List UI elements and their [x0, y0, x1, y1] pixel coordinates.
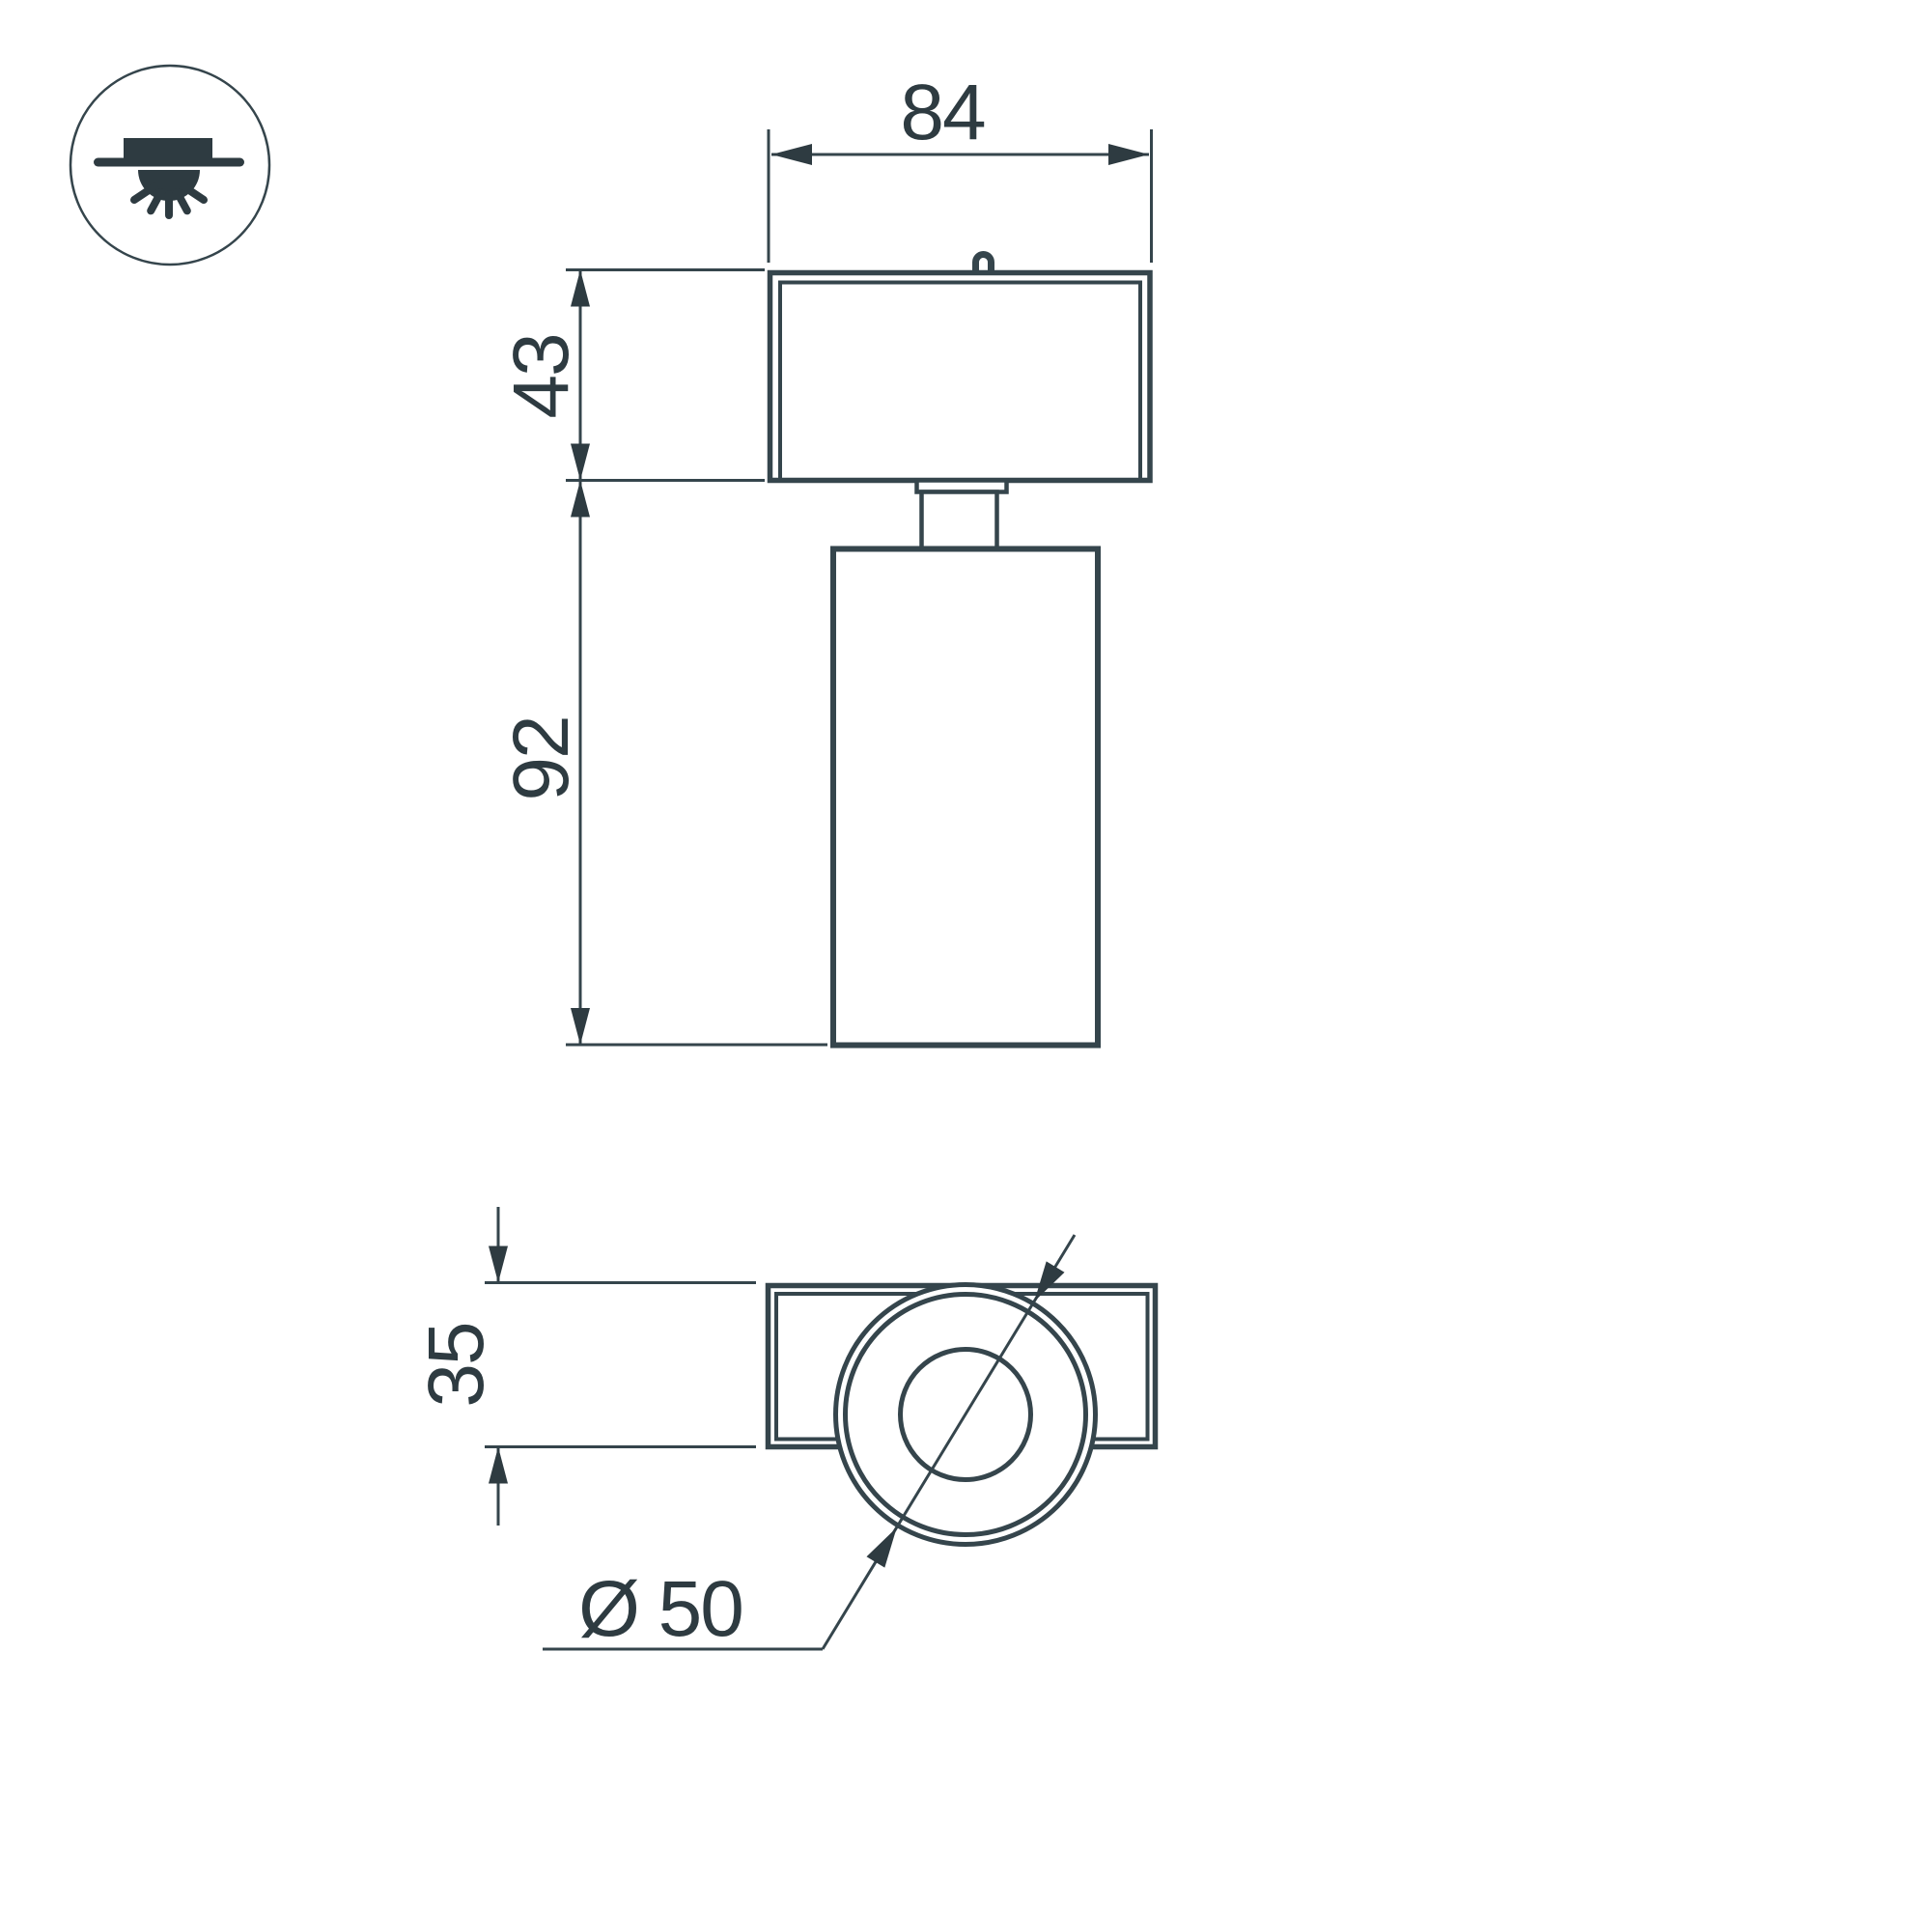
- technical-drawing-page: 84 43 92: [0, 0, 1932, 1932]
- dim-label-face-diameter: Ø 50: [578, 1565, 742, 1653]
- dim-label-plate-height: 35: [412, 1323, 500, 1407]
- arrowhead-left: [771, 144, 812, 165]
- mount-base-outline: [770, 273, 1151, 481]
- arrowhead-diameter-lower: [867, 1527, 897, 1568]
- dim-label-front-width: 84: [900, 69, 985, 156]
- dim-label-base-height: 43: [497, 334, 585, 418]
- mount-base-latch-loop: [976, 255, 992, 272]
- arrowhead-92-top: [571, 481, 590, 518]
- mounting-type-badge: [70, 66, 269, 265]
- dim-front-width: 84: [769, 69, 1152, 263]
- arrowhead-35-bottom: [489, 1447, 508, 1484]
- mount-base: [770, 255, 1151, 481]
- icon-ceiling-line: [94, 158, 244, 167]
- front-view: 84 43 92: [497, 69, 1152, 1046]
- arrowhead-35-top: [489, 1246, 508, 1283]
- swivel-joint: [917, 481, 1007, 552]
- arrowhead-right: [1108, 144, 1149, 165]
- surface-mounted-ceiling-light-icon: [94, 138, 244, 215]
- dim-plate-height: 35: [412, 1207, 756, 1526]
- spot-barrel: [833, 549, 1098, 1046]
- dimension-drawing-canvas: 84 43 92: [0, 0, 1932, 1932]
- arrowhead-43-top: [571, 270, 590, 307]
- arrowhead-92-bottom: [571, 1008, 590, 1045]
- icon-light-rays: [134, 186, 204, 215]
- bottom-view: 35 Ø 50: [412, 1207, 1156, 1653]
- arrowhead-43-bottom: [571, 444, 590, 481]
- dim-label-body-height: 92: [497, 716, 585, 800]
- swivel-stem: [922, 492, 997, 552]
